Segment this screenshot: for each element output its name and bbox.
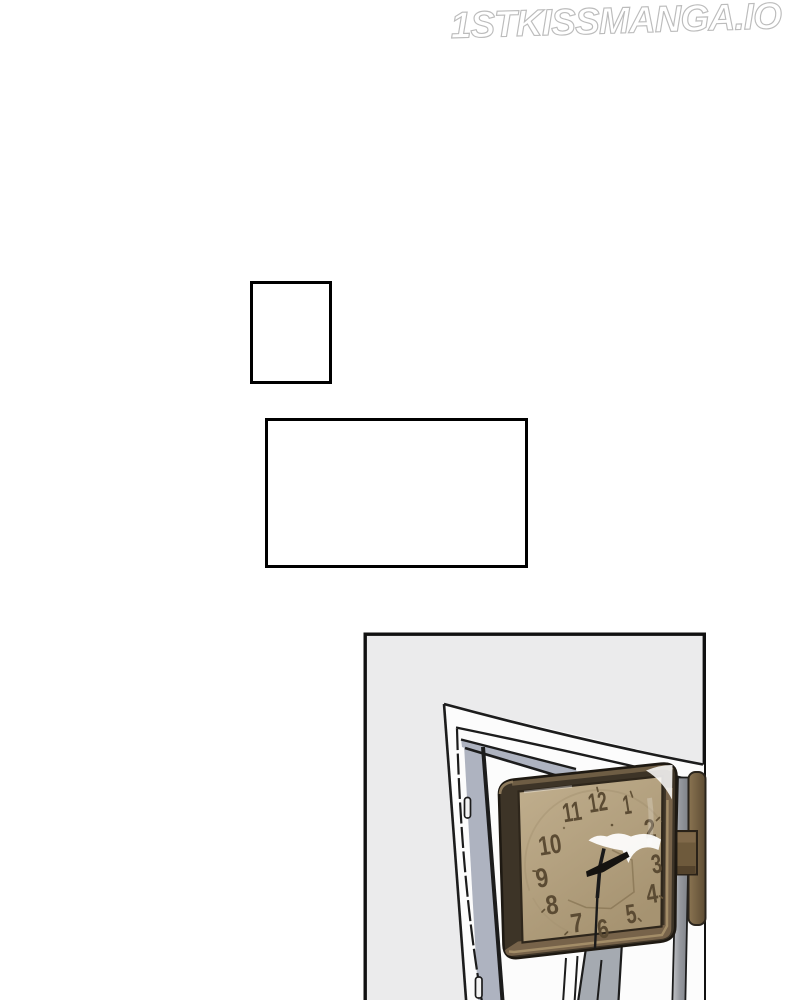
svg-text:10: 10 [536, 828, 563, 861]
